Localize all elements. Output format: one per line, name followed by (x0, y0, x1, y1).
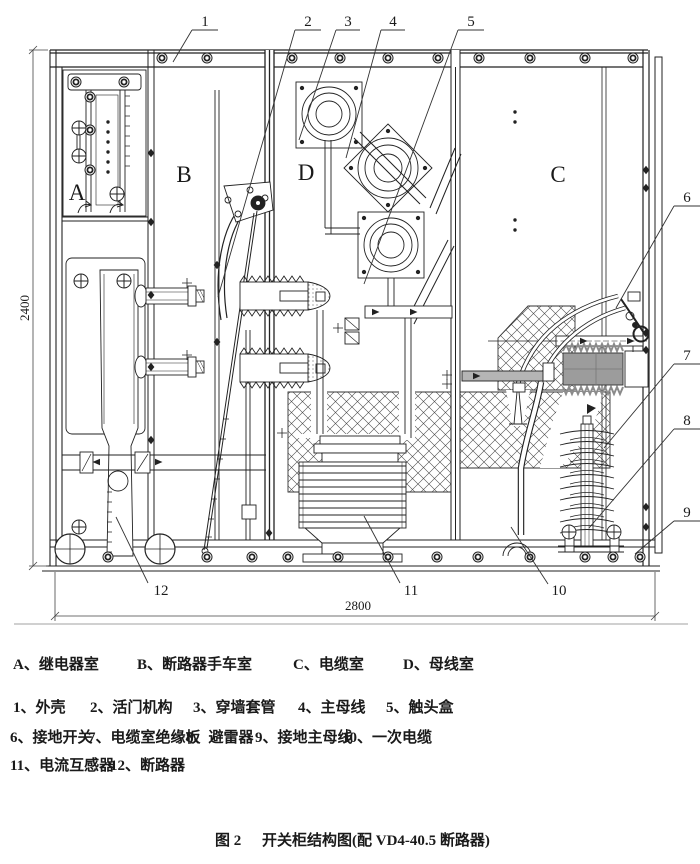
contact-box-upper (240, 276, 330, 316)
legend-compartment-a: A、继电器室 (13, 653, 99, 674)
legend-item-11: 11、电流互感器 (10, 754, 114, 775)
switchgear-structure-diagram: 2400 2800 A B D C 1 2 3 4 5 6 7 8 9 10 1… (0, 0, 700, 640)
legend-item-8: 8、避雷器 (186, 726, 254, 747)
callout-11: 11 (404, 583, 418, 599)
callout-12: 12 (154, 583, 169, 599)
dimension-width-value: 2800 (345, 598, 371, 613)
callout-6: 6 (683, 190, 691, 206)
dimension-height-value: 2400 (17, 295, 32, 321)
callout-5: 5 (467, 14, 475, 30)
callout-2: 2 (304, 14, 312, 30)
callout-9: 9 (683, 505, 691, 521)
current-transformer (297, 434, 409, 562)
legend-item-4: 4、主母线 (298, 696, 366, 717)
legend-compartment-d: D、母线室 (403, 653, 474, 674)
top-rail-bolts (157, 53, 638, 63)
compartment-letter-b: B (176, 162, 191, 187)
circuit-breaker (62, 258, 266, 556)
wall-bushing (296, 82, 362, 148)
legend-item-6: 6、接地开关 (10, 726, 93, 747)
callout-10: 10 (552, 583, 567, 599)
callout-3: 3 (344, 14, 352, 30)
lower-bushing (358, 212, 424, 278)
relay-panel-dots (106, 120, 109, 173)
legend-item-7: 7、电缆室绝缘板 (88, 726, 201, 747)
legend-item-12: 12、断路器 (110, 754, 185, 775)
cable-bushing (563, 344, 648, 394)
callout-1: 1 (201, 14, 209, 30)
legend-item-3: 3、穿墙套管 (193, 696, 276, 717)
compartment-letter-c: C (550, 162, 565, 187)
compartment-letter-d: D (298, 160, 315, 185)
contact-box-lower (240, 348, 330, 388)
callout-7: 7 (683, 348, 691, 364)
legend-item-1: 1、外壳 (13, 696, 66, 717)
legend-item-10: 10、一次电缆 (342, 726, 432, 747)
legend-item-9: 9、接地主母线 (255, 726, 353, 747)
figure-number: 图 2 (215, 829, 241, 850)
legend-item-5: 5、触头盒 (386, 696, 454, 717)
legend-compartment-c: C、电缆室 (293, 653, 364, 674)
shutter-mechanism (202, 90, 273, 554)
callout-4: 4 (389, 14, 397, 30)
partition-busbar-cable (451, 50, 460, 540)
callout-8: 8 (683, 413, 691, 429)
compartment-letter-a: A (69, 180, 86, 205)
breaker-contact-arm (135, 285, 204, 307)
technical-drawing-page: 2400 2800 A B D C 1 2 3 4 5 6 7 8 9 10 1… (0, 0, 700, 864)
main-busbar-conductor (325, 140, 360, 234)
handcart-wheel (145, 534, 175, 564)
breaker-contact-arm (135, 356, 204, 378)
figure-title: 开关柜结构图(配 VD4-40.5 断路器) (262, 829, 490, 850)
legend-compartment-b: B、断路器手车室 (137, 653, 252, 674)
handcart-wheel (55, 534, 85, 564)
legend-item-2: 2、活门机构 (90, 696, 173, 717)
